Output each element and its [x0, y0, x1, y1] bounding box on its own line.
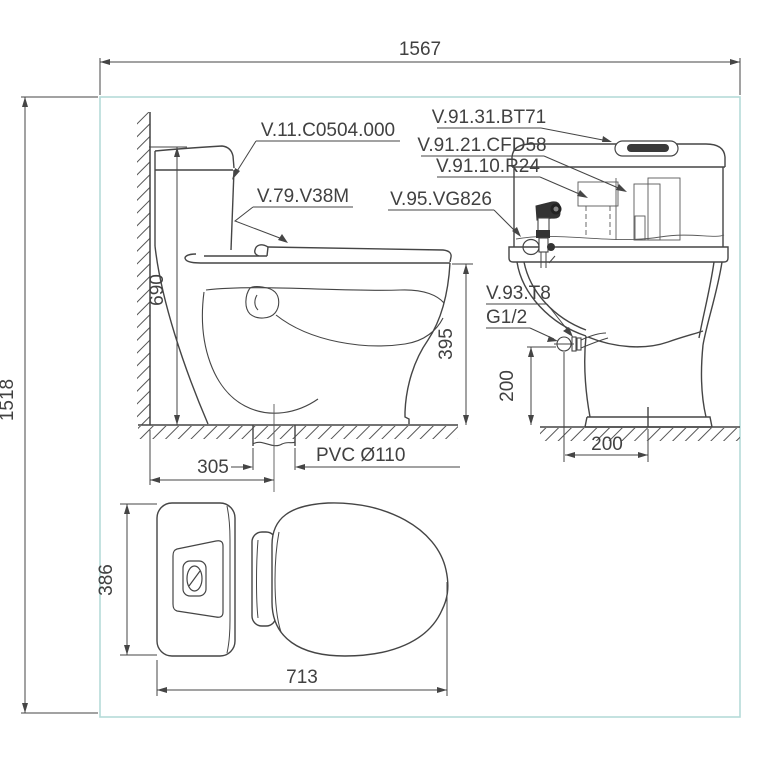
wall-hatch: [137, 112, 150, 425]
angle-valve-code-label: V.93.T8: [486, 283, 551, 304]
thread-size-label: G1/2: [486, 307, 527, 328]
dim-top-width-text: 386: [96, 564, 117, 596]
flush-valve-code-label: V.91.21.CFD58: [417, 135, 546, 156]
background: [0, 0, 768, 768]
dim-inlet-height-text: 200: [497, 370, 518, 402]
dim-overall-width-text: 1567: [399, 39, 441, 60]
dim-drain-offset-text: 305: [197, 457, 229, 478]
dim-inlet-offset-text: 200: [591, 434, 623, 455]
fill-valve-code-label: V.91.10.R24: [436, 156, 540, 177]
sprayer-code-label: V.95.VG826: [390, 189, 492, 210]
dim-tank-height-text: 690: [147, 274, 168, 306]
flush-button: [615, 141, 678, 156]
dim-rim-height-text: 395: [436, 328, 457, 360]
technical-drawing: 1567 1518: [0, 0, 768, 768]
dim-top-depth-text: 713: [286, 667, 318, 688]
flush-button-code-label: V.91.31.BT71: [432, 107, 546, 128]
tank-code-label: V.11.C0504.000: [261, 120, 395, 141]
seat-code-label: V.79.V38M: [257, 186, 349, 207]
dim-overall-height-text: 1518: [0, 379, 18, 421]
drawing-canvas: 1567 1518: [0, 0, 768, 768]
drain-pipe-label: PVC Ø110: [316, 445, 405, 466]
floor-hatch-front: [540, 428, 740, 441]
floor-hatch-side: [138, 426, 458, 439]
